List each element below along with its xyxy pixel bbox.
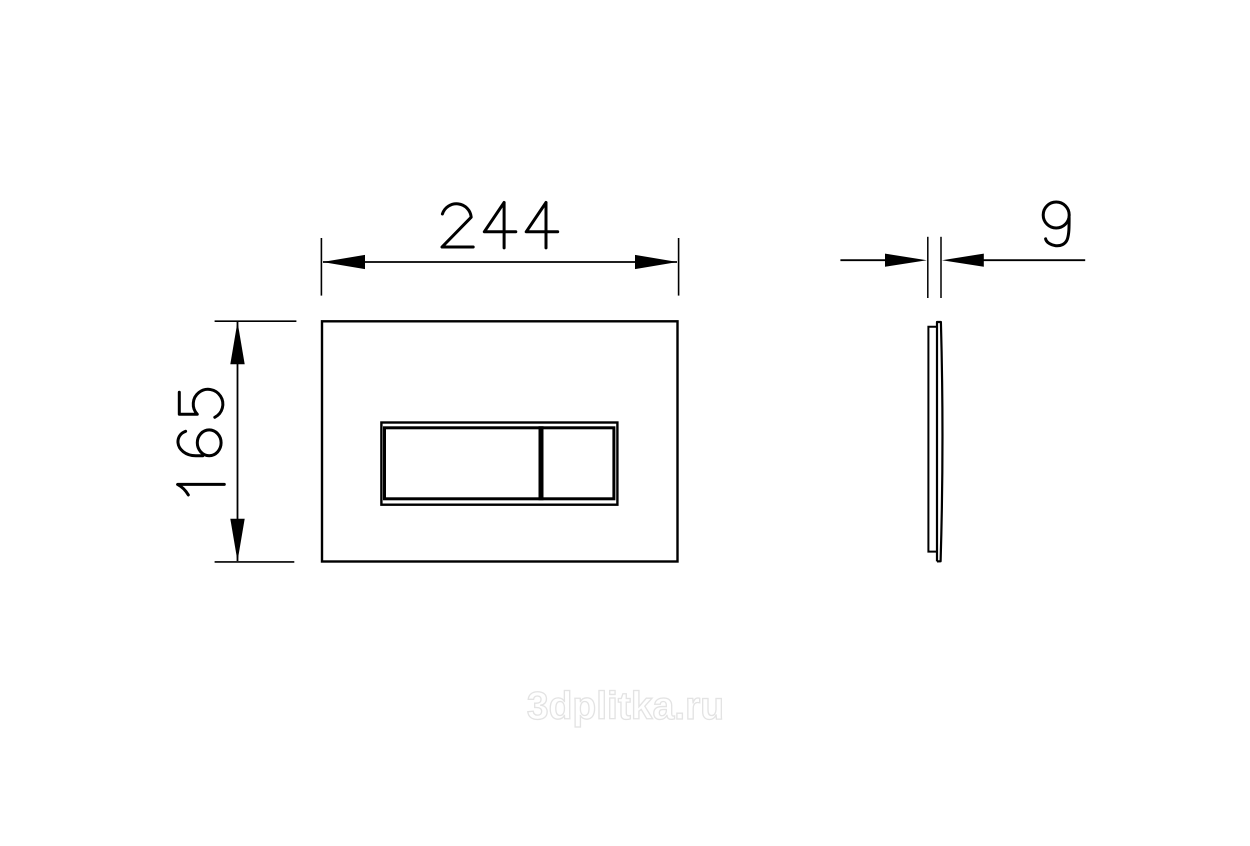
svg-text:3dplitka.ru: 3dplitka.ru — [527, 685, 724, 728]
